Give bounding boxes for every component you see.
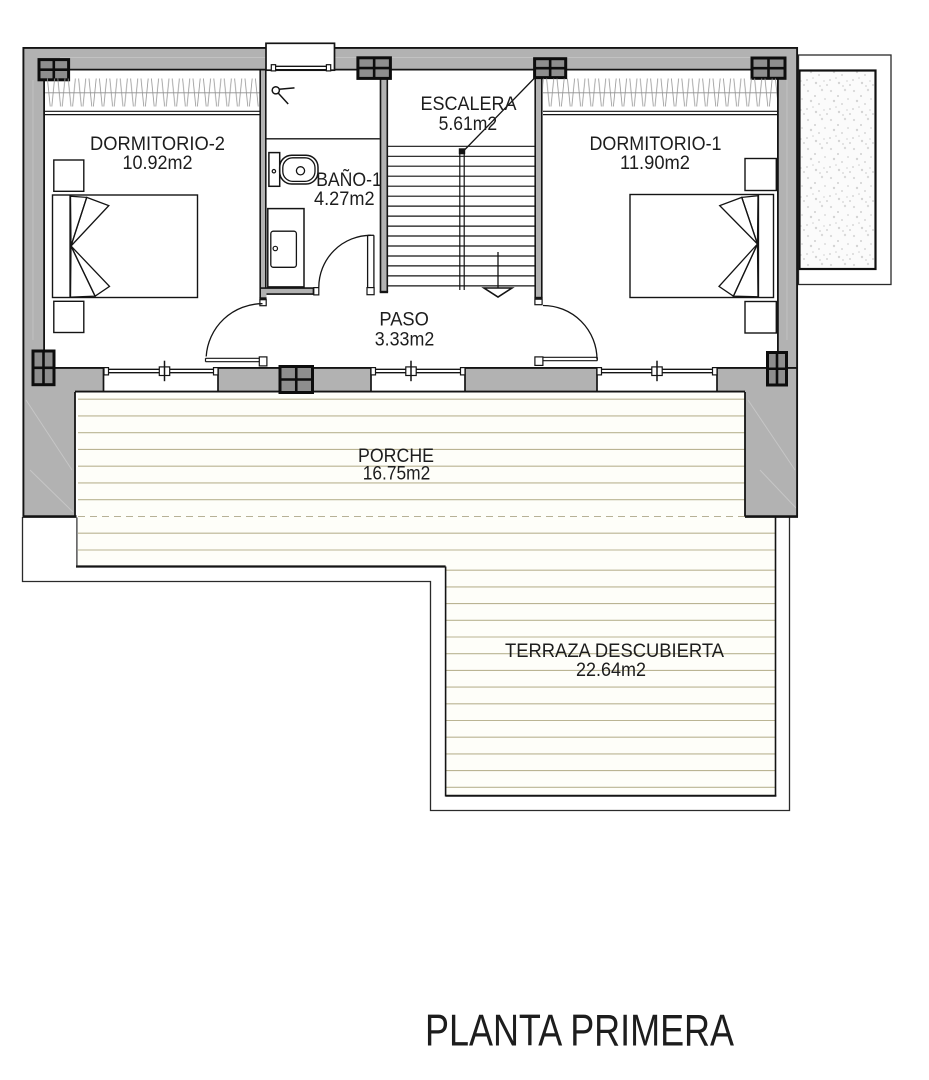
svg-text:4.27m2: 4.27m2 bbox=[314, 188, 375, 210]
svg-text:PASO: PASO bbox=[379, 308, 429, 330]
svg-text:PLANTA PRIMERA: PLANTA PRIMERA bbox=[425, 1006, 734, 1055]
svg-text:11.90m2: 11.90m2 bbox=[620, 152, 690, 174]
svg-text:3.33m2: 3.33m2 bbox=[375, 328, 435, 350]
svg-text:5.61m2: 5.61m2 bbox=[439, 113, 498, 135]
svg-text:10.92m2: 10.92m2 bbox=[123, 152, 193, 174]
svg-text:16.75m2: 16.75m2 bbox=[363, 463, 431, 485]
svg-text:ESCALERA: ESCALERA bbox=[421, 93, 517, 115]
svg-text:22.64m2: 22.64m2 bbox=[576, 659, 646, 681]
